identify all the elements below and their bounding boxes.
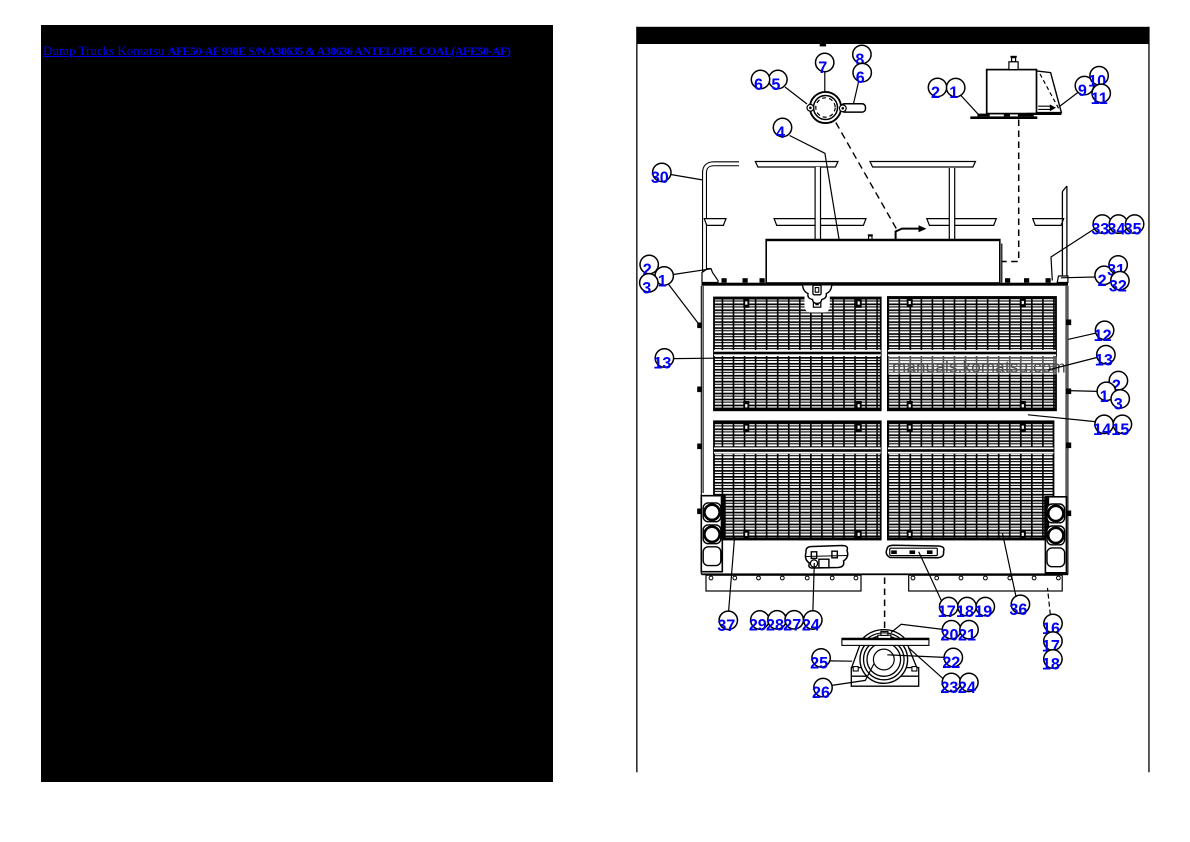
svg-text:6: 6 — [754, 75, 763, 94]
svg-text:20: 20 — [941, 625, 959, 644]
svg-text:24: 24 — [958, 678, 977, 697]
svg-text:21: 21 — [958, 625, 976, 644]
svg-text:18: 18 — [956, 602, 974, 621]
svg-text:13: 13 — [1095, 350, 1113, 369]
svg-text:6: 6 — [856, 68, 865, 87]
svg-text:28: 28 — [766, 615, 784, 634]
svg-text:30: 30 — [651, 168, 669, 187]
svg-text:1: 1 — [949, 83, 958, 102]
svg-text:1: 1 — [658, 271, 667, 290]
svg-text:manuals.komatsu.com: manuals.komatsu.com — [892, 358, 1066, 377]
svg-text:2: 2 — [931, 83, 940, 102]
svg-text:27: 27 — [783, 615, 801, 634]
svg-text:4: 4 — [776, 123, 786, 142]
svg-text:2: 2 — [1098, 271, 1107, 290]
svg-text:15: 15 — [1111, 420, 1129, 439]
svg-text:24: 24 — [802, 615, 821, 634]
svg-text:1: 1 — [1100, 387, 1109, 406]
svg-text:14: 14 — [1093, 420, 1112, 439]
svg-text:19: 19 — [974, 602, 992, 621]
svg-text:26: 26 — [812, 683, 830, 702]
svg-text:5: 5 — [771, 75, 780, 94]
svg-text:29: 29 — [749, 615, 767, 634]
svg-text:3: 3 — [1114, 394, 1123, 413]
svg-text:12: 12 — [1094, 326, 1112, 345]
svg-text:3: 3 — [642, 278, 651, 297]
svg-text:22: 22 — [942, 653, 960, 672]
svg-text:9: 9 — [1078, 81, 1087, 100]
svg-text:36: 36 — [1009, 600, 1027, 619]
svg-text:7: 7 — [818, 58, 827, 77]
svg-text:13: 13 — [653, 353, 671, 372]
svg-text:18: 18 — [1042, 654, 1060, 673]
svg-text:35: 35 — [1124, 219, 1142, 238]
svg-text:25: 25 — [810, 653, 828, 672]
svg-text:32: 32 — [1109, 276, 1127, 295]
svg-text:17: 17 — [938, 602, 956, 621]
svg-text:23: 23 — [940, 678, 958, 697]
svg-text:11: 11 — [1091, 89, 1108, 108]
svg-text:37: 37 — [717, 616, 735, 635]
